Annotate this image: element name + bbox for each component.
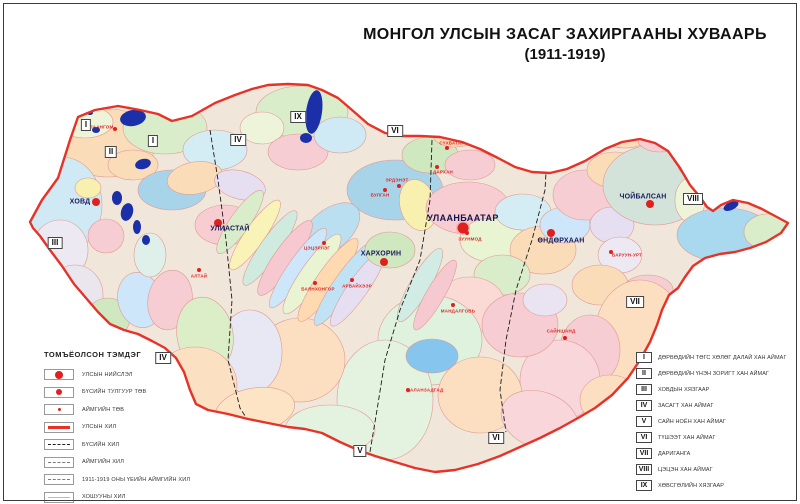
legend-symbol-label: УЛСЫН НИЙСЛЭЛ (82, 372, 133, 378)
city-dot-aimag (397, 184, 401, 188)
legend-symbol-row: УЛСЫН НИЙСЛЭЛ (44, 369, 294, 380)
title-line2: (1911-1919) (330, 46, 800, 63)
map-numeral-box: II (105, 146, 117, 158)
city-label: БАЯНХОНГОР (301, 287, 334, 292)
city-label: АРВАЙХЭЭР (342, 284, 372, 289)
legend-region-row: VIIIЦЭЦЭН ХАН АЙМАГ (636, 464, 794, 475)
legend-regions: IДӨРВӨДИЙН ТӨГС ХӨЛӨГ ДАЛАЙ ХАН АЙМАГIIД… (636, 352, 794, 496)
city-dot-aimag (445, 146, 449, 150)
legend-symbol-swatch (44, 457, 74, 468)
city-dot-regional (380, 258, 388, 266)
legend-symbols-title: ТОМЪЁОЛСОН ТЭМДЭГ (44, 350, 294, 359)
city-label: БУЛГАН (371, 193, 390, 198)
legend-symbol-label: БҮСИЙН ТУЛГУУР ТӨВ (82, 389, 146, 395)
legend-symbol-swatch (44, 492, 74, 503)
city-dot-regional (646, 200, 654, 208)
legend-region-label: САЙН НОЁН ХАН АЙМАГ (658, 419, 726, 425)
legend-region-row: VСАЙН НОЁН ХАН АЙМАГ (636, 416, 794, 427)
legend-region-numeral: IV (636, 400, 652, 411)
city-label: ХОВД (70, 199, 91, 206)
legend-region-row: IIДӨРВӨДИЙН ҮНЭН ЗОРИГТ ХАН АЙМАГ (636, 368, 794, 379)
dot-medium-icon (56, 389, 62, 395)
city-dot-aimag (563, 336, 567, 340)
city-label: УЛААНБААТАР (427, 213, 499, 223)
legend-region-row: IДӨРВӨДИЙН ТӨГС ХӨЛӨГ ДАЛАЙ ХАН АЙМАГ (636, 352, 794, 363)
line-1911-icon (48, 479, 70, 480)
map-numeral-box: IV (230, 134, 246, 146)
map-page: МОНГОЛ УЛСЫН ЗАСАГ ЗАХИРГААНЫ ХУВААРЬ (1… (0, 0, 800, 504)
legend-region-numeral: IX (636, 480, 652, 491)
legend-region-row: IVЗАСАГТ ХАН АЙМАГ (636, 400, 794, 411)
map-numeral-box: I (81, 119, 91, 131)
legend-region-numeral: II (636, 368, 652, 379)
city-dot-aimag (313, 281, 317, 285)
legend-region-label: ДӨРВӨДИЙН ҮНЭН ЗОРИГТ ХАН АЙМАГ (658, 371, 769, 377)
page-title: МОНГОЛ УЛСЫН ЗАСАГ ЗАХИРГААНЫ ХУВААРЬ (1… (330, 26, 800, 63)
map-numeral-box: IX (290, 111, 306, 123)
city-dot-aimag (435, 165, 439, 169)
legend-symbol-row: БҮСИЙН ТУЛГУУР ТӨВ (44, 387, 294, 398)
line-khoshuu-icon (48, 497, 70, 498)
legend-symbol-label: УЛСЫН ХИЛ (82, 424, 116, 430)
map-numeral-box: VII (626, 296, 644, 308)
legend-symbols: ТОМЪЁОЛСОН ТЭМДЭГ УЛСЫН НИЙСЛЭЛБҮСИЙН ТУ… (44, 350, 294, 504)
legend-region-label: ДАРИГАНГА (658, 451, 690, 457)
line-state-icon (48, 426, 70, 429)
dot-small-icon (58, 408, 61, 411)
legend-symbol-swatch (44, 474, 74, 485)
line-region-icon (48, 444, 70, 445)
city-dot-regional (92, 198, 100, 206)
legend-region-label: ЗАСАГТ ХАН АЙМАГ (658, 403, 714, 409)
legend-symbol-swatch (44, 369, 74, 380)
dot-large-icon (55, 371, 63, 379)
legend-region-numeral: VIII (636, 464, 652, 475)
city-dot-aimag (383, 188, 387, 192)
legend-symbol-row: УЛСЫН ХИЛ (44, 422, 294, 433)
city-dot-regional (547, 229, 555, 237)
legend-symbol-row: БҮСИЙН ХИЛ (44, 439, 294, 450)
legend-symbol-row: АЙМГИЙН ХИЛ (44, 457, 294, 468)
city-label: БАРУУН-УРТ (612, 253, 642, 258)
legend-symbol-swatch (44, 439, 74, 450)
map-numeral-box: VI (488, 432, 504, 444)
legend-region-row: IXХӨВСГӨЛИЙН ХЯЗГААР (636, 480, 794, 491)
city-label: ДАЛАНЗАДГАД (407, 388, 444, 393)
legend-symbol-label: АЙМГИЙН ХИЛ (82, 459, 124, 465)
legend-symbol-label: 1911-1919 ОНЫ ҮЕИЙН АЙМГИЙН ХИЛ (82, 477, 190, 483)
legend-region-label: ЦЭЦЭН ХАН АЙМАГ (658, 467, 713, 473)
legend-symbol-row: ХОШУУНЫ ХИЛ (44, 492, 294, 503)
city-label: ЦЭЦЭРЛЭГ (304, 246, 330, 251)
city-dot-aimag (113, 127, 117, 131)
legend-region-label: ТҮШЭЭТ ХАН АЙМАГ (658, 435, 716, 441)
city-label: СҮХБАТАР (439, 141, 464, 146)
legend-region-label: ХӨВСГӨЛИЙН ХЯЗГААР (658, 483, 724, 489)
map-numeral-box: III (48, 237, 63, 249)
legend-symbol-swatch (44, 404, 74, 415)
legend-region-label: ХОВДЫН ХЯЗГААР (658, 387, 709, 393)
city-dot-aimag (322, 241, 326, 245)
city-dot-aimag (197, 268, 201, 272)
legend-symbol-row: 1911-1919 ОНЫ ҮЕИЙН АЙМГИЙН ХИЛ (44, 474, 294, 485)
city-dot-aimag (451, 303, 455, 307)
city-label: САЙНШАНД (547, 329, 576, 334)
city-label: ХАРХОРИН (361, 251, 401, 258)
legend-symbol-label: АЙМГИЙН ТӨВ (82, 407, 124, 413)
city-label: ЭРДЭНЭТ (386, 178, 409, 183)
legend-symbol-swatch (44, 422, 74, 433)
legend-region-numeral: VI (636, 432, 652, 443)
legend-region-numeral: III (636, 384, 652, 395)
city-label: ӨНДӨРХААН (538, 238, 585, 245)
map-numeral-box: VI (387, 125, 403, 137)
line-aimag-icon (48, 462, 70, 463)
map-numeral-box: V (353, 445, 366, 457)
legend-region-row: VIIДАРИГАНГА (636, 448, 794, 459)
city-dot-aimag (465, 231, 469, 235)
legend-region-numeral: I (636, 352, 652, 363)
city-dot-aimag (350, 278, 354, 282)
legend-symbol-row: АЙМГИЙН ТӨВ (44, 404, 294, 415)
legend-region-numeral: VII (636, 448, 652, 459)
city-label: ЧОЙБАЛСАН (619, 194, 666, 201)
title-line1: МОНГОЛ УЛСЫН ЗАСАГ ЗАХИРГААНЫ ХУВААРЬ (330, 26, 800, 44)
legend-region-row: IIIХОВДЫН ХЯЗГААР (636, 384, 794, 395)
map-numeral-box: VIII (683, 193, 703, 205)
city-label: ДАРХАН (433, 170, 453, 175)
map-numeral-box: I (148, 135, 158, 147)
legend-region-numeral: V (636, 416, 652, 427)
legend-symbol-label: БҮСИЙН ХИЛ (82, 442, 119, 448)
city-label: ЗУУНМОД (458, 237, 481, 242)
city-label: УЛИАСТАЙ (210, 226, 249, 233)
legend-symbol-swatch (44, 387, 74, 398)
legend-region-row: VIТҮШЭЭТ ХАН АЙМАГ (636, 432, 794, 443)
legend-region-label: ДӨРВӨДИЙН ТӨГС ХӨЛӨГ ДАЛАЙ ХАН АЙМАГ (658, 355, 787, 361)
city-label: АЛТАЙ (191, 274, 207, 279)
city-label: МАНДАЛГОВЬ (441, 309, 475, 314)
legend-symbol-label: ХОШУУНЫ ХИЛ (82, 494, 126, 500)
